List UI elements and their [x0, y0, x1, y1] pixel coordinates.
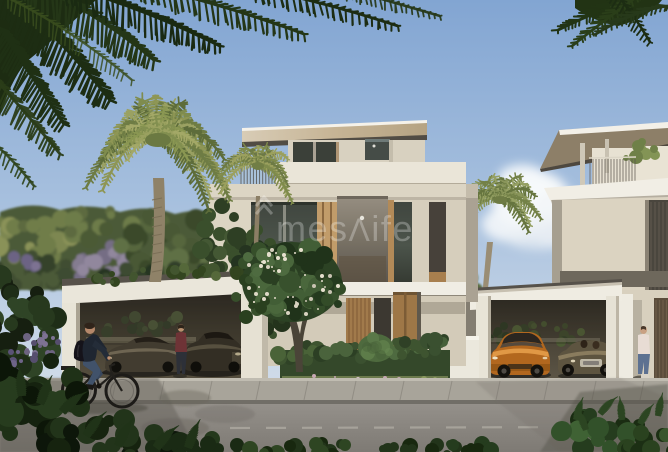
svg-text:mesΛife: mesΛife	[276, 208, 414, 249]
